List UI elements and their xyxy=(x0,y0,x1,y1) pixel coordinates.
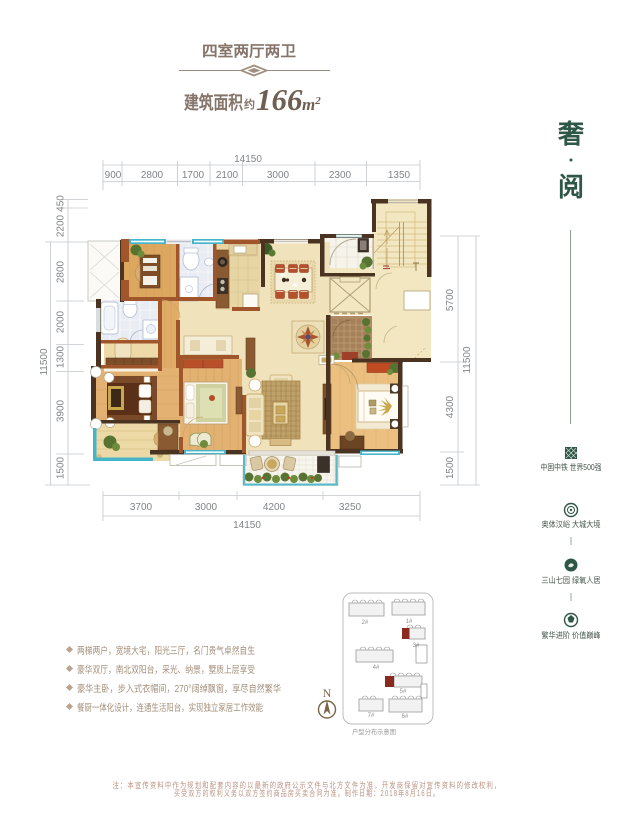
svg-text:两梯两户，宽境大宅，阳光三厅，名门贵气卓然自生: 两梯两户，宽境大宅，阳光三厅，名门贵气卓然自生 xyxy=(77,644,255,657)
svg-text:166: 166 xyxy=(256,82,303,117)
svg-text:豪华主卧，步入式衣帽间，270°阔绰飘窗，享尽自然繁华: 豪华主卧，步入式衣帽间，270°阔绰飘窗，享尽自然繁华 xyxy=(77,682,281,695)
svg-text:2800: 2800 xyxy=(56,260,67,283)
svg-text:6#: 6# xyxy=(402,714,409,720)
svg-text:3#: 3# xyxy=(413,643,420,649)
svg-text:买受双方的权利义务以双方签约商品房买卖合同为准。制作日期：2: 买受双方的权利义务以双方签约商品房买卖合同为准。制作日期：2018年8月16日。 xyxy=(174,788,440,798)
svg-text:4200: 4200 xyxy=(263,502,286,513)
svg-text:11500: 11500 xyxy=(462,346,473,374)
svg-text:900: 900 xyxy=(105,170,122,181)
svg-text:2#: 2# xyxy=(362,620,369,626)
svg-text:建筑面积: 建筑面积 xyxy=(184,92,243,113)
svg-text:2200: 2200 xyxy=(56,214,67,237)
svg-text:中国中铁 世界500强: 中国中铁 世界500强 xyxy=(541,462,602,472)
svg-text:11500: 11500 xyxy=(39,348,50,376)
svg-text:14150: 14150 xyxy=(233,520,261,531)
svg-text:四室两厅两卫: 四室两厅两卫 xyxy=(202,42,296,60)
svg-text:繁华进阶 价值巅峰: 繁华进阶 价值巅峰 xyxy=(542,630,601,640)
svg-text:餐厨一体化设计，连通生活阳台，实现独立家居工作效能: 餐厨一体化设计，连通生活阳台，实现独立家居工作效能 xyxy=(77,701,263,714)
svg-text:3250: 3250 xyxy=(339,502,362,513)
svg-text:1#: 1# xyxy=(406,619,413,625)
svg-text:3000: 3000 xyxy=(195,502,218,513)
svg-text:3900: 3900 xyxy=(56,399,67,422)
svg-text:3000: 3000 xyxy=(267,170,290,181)
svg-text:1700: 1700 xyxy=(182,170,205,181)
svg-text:约: 约 xyxy=(244,97,255,111)
svg-text:阅: 阅 xyxy=(558,172,584,202)
svg-text:户型分布示意图: 户型分布示意图 xyxy=(352,727,396,736)
svg-text:奢: 奢 xyxy=(557,119,585,149)
svg-text:7#: 7# xyxy=(368,713,375,719)
svg-text:奥体汉峪 大城大境: 奥体汉峪 大城大境 xyxy=(542,519,601,529)
svg-text:3700: 3700 xyxy=(130,502,153,513)
svg-text:4#: 4# xyxy=(373,665,380,671)
svg-text:2000: 2000 xyxy=(56,310,67,333)
svg-text:1500: 1500 xyxy=(445,456,456,479)
svg-text:5700: 5700 xyxy=(445,288,456,311)
svg-text:14150: 14150 xyxy=(234,154,262,165)
svg-text:1500: 1500 xyxy=(56,456,67,479)
svg-text:1300: 1300 xyxy=(56,345,67,368)
svg-text:1350: 1350 xyxy=(388,170,411,181)
svg-text:2800: 2800 xyxy=(141,170,164,181)
svg-text:豪华双厅，南北双阳台，采光、纳景，墅质上层享受: 豪华双厅，南北双阳台，采光、纳景，墅质上层享受 xyxy=(77,663,255,676)
svg-text:5#: 5# xyxy=(400,689,407,695)
svg-text:4300: 4300 xyxy=(445,395,456,418)
svg-text:N: N xyxy=(323,686,332,700)
svg-text:2300: 2300 xyxy=(329,170,352,181)
svg-text:450: 450 xyxy=(56,195,67,212)
svg-text:三山七园 绿氧人居: 三山七园 绿氧人居 xyxy=(542,575,601,585)
svg-text:2100: 2100 xyxy=(216,170,239,181)
